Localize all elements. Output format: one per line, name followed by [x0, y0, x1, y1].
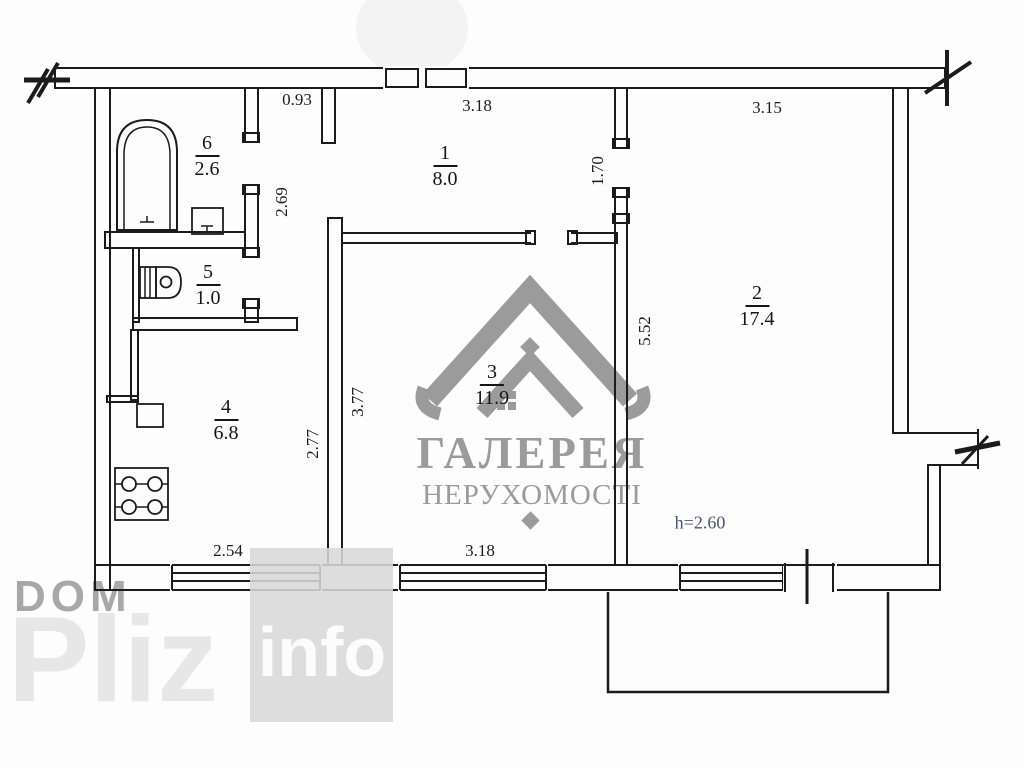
floor-plan-drawing [0, 0, 1024, 768]
room-label-5: 5 1.0 [196, 261, 221, 310]
dim-corridor-length: 2.69 [272, 187, 292, 217]
kitchen-sink-icon [137, 404, 163, 427]
room-label-2: 2 17.4 [740, 282, 775, 331]
room-label-4: 4 6.8 [214, 396, 239, 445]
room-label-1: 1 8.0 [433, 142, 458, 191]
dim-corridor-width: 0.93 [282, 90, 312, 110]
ceiling-height-note: h=2.60 [675, 513, 726, 534]
dim-kitchen-width: 2.54 [213, 541, 243, 561]
dim-room3-width: 3.18 [465, 541, 495, 561]
room2-window [678, 563, 785, 592]
section-cut-marks [24, 50, 1000, 464]
room-label-3: 3 11.9 [475, 361, 509, 410]
dim-kitchen-depth: 2.77 [303, 429, 323, 459]
dim-hall-room2-wall: 1.70 [588, 156, 608, 186]
room-label-6: 6 2.6 [195, 132, 220, 181]
interior-walls [105, 88, 629, 565]
watermark-info: info [252, 612, 392, 692]
toilet-icon [140, 267, 181, 298]
dim-room2-width: 3.15 [752, 98, 782, 118]
stove-icon [115, 468, 168, 520]
washbasin-icon [192, 208, 223, 234]
balcony [608, 592, 888, 692]
dim-hall-width: 3.18 [462, 96, 492, 116]
room3-window [398, 563, 548, 592]
dim-room3-depth: 3.77 [348, 387, 368, 417]
floor-plan-page: ГАЛЕРЕЯ НЕРУХОМОСТІ DOM Pliz [0, 0, 1024, 768]
bathtub-icon [117, 120, 177, 230]
dim-room2-depth: 5.52 [635, 316, 655, 346]
balcony-door [783, 549, 837, 604]
entrance-door [383, 66, 469, 90]
